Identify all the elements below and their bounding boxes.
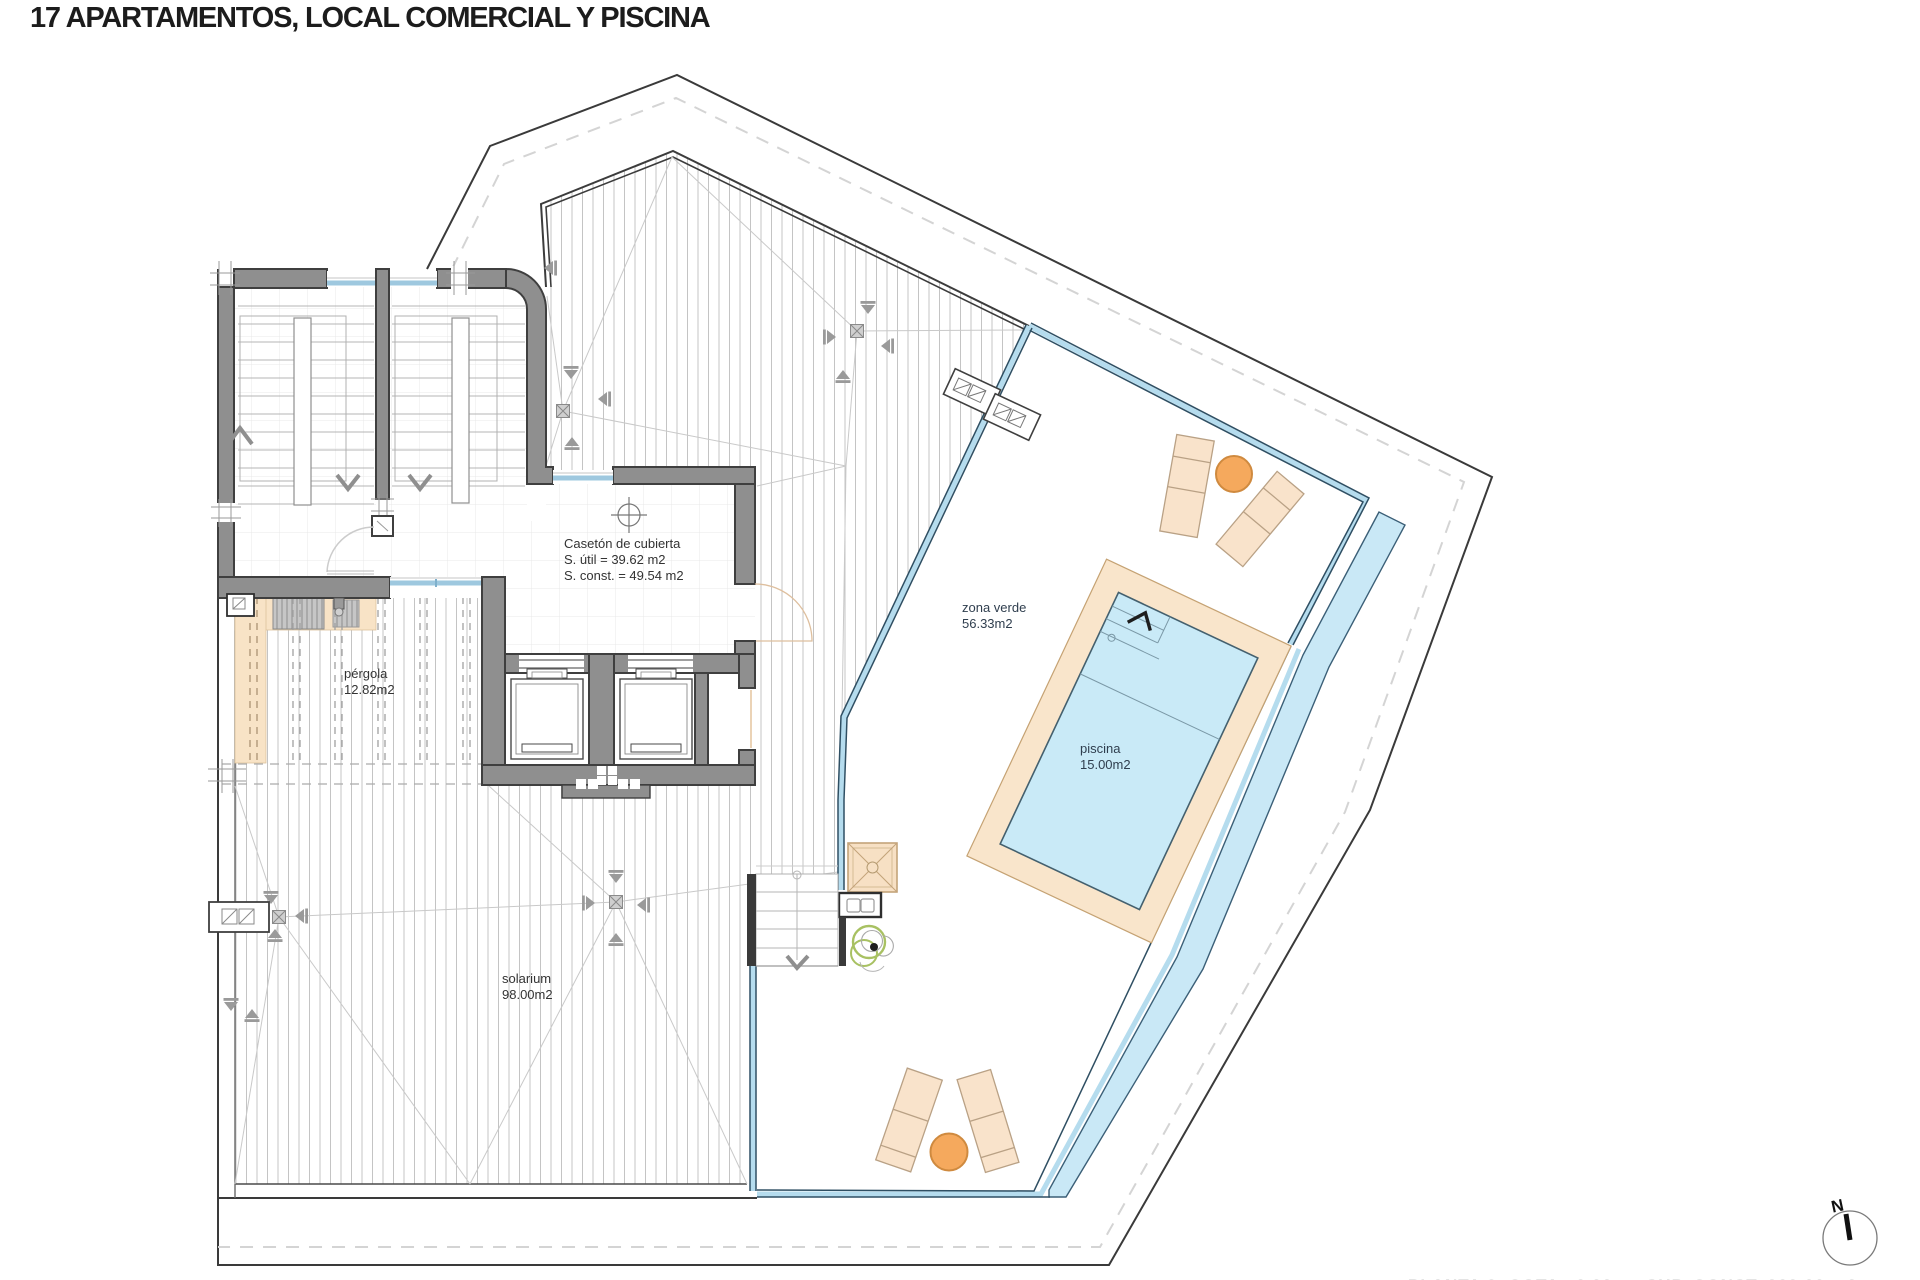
svg-text:solarium: solarium	[502, 971, 551, 986]
svg-text:17 APARTAMENTOS, LOCAL COMERCI: 17 APARTAMENTOS, LOCAL COMERCIAL Y PISCI…	[30, 2, 711, 34]
svg-text:56.33m2: 56.33m2	[962, 616, 1013, 631]
svg-text:piscina: piscina	[1080, 741, 1121, 756]
svg-text:12.82m2: 12.82m2	[344, 682, 395, 697]
svg-text:PLANTA 2. COTA +6.00 m. SUP.: PLANTA 2. COTA +6.00 m. SUP. CONST. 260.…	[1408, 1276, 1858, 1280]
svg-text:98.00m2: 98.00m2	[502, 987, 553, 1002]
svg-text:zona verde: zona verde	[962, 600, 1026, 615]
svg-text:Casetón de cubierta: Casetón de cubierta	[564, 536, 681, 551]
svg-text:S. útil = 39.62 m2: S. útil = 39.62 m2	[564, 552, 666, 567]
svg-text:pérgola: pérgola	[344, 666, 388, 681]
svg-text:15.00m2: 15.00m2	[1080, 757, 1131, 772]
svg-text:S. const. = 49.54 m2: S. const. = 49.54 m2	[564, 568, 684, 583]
